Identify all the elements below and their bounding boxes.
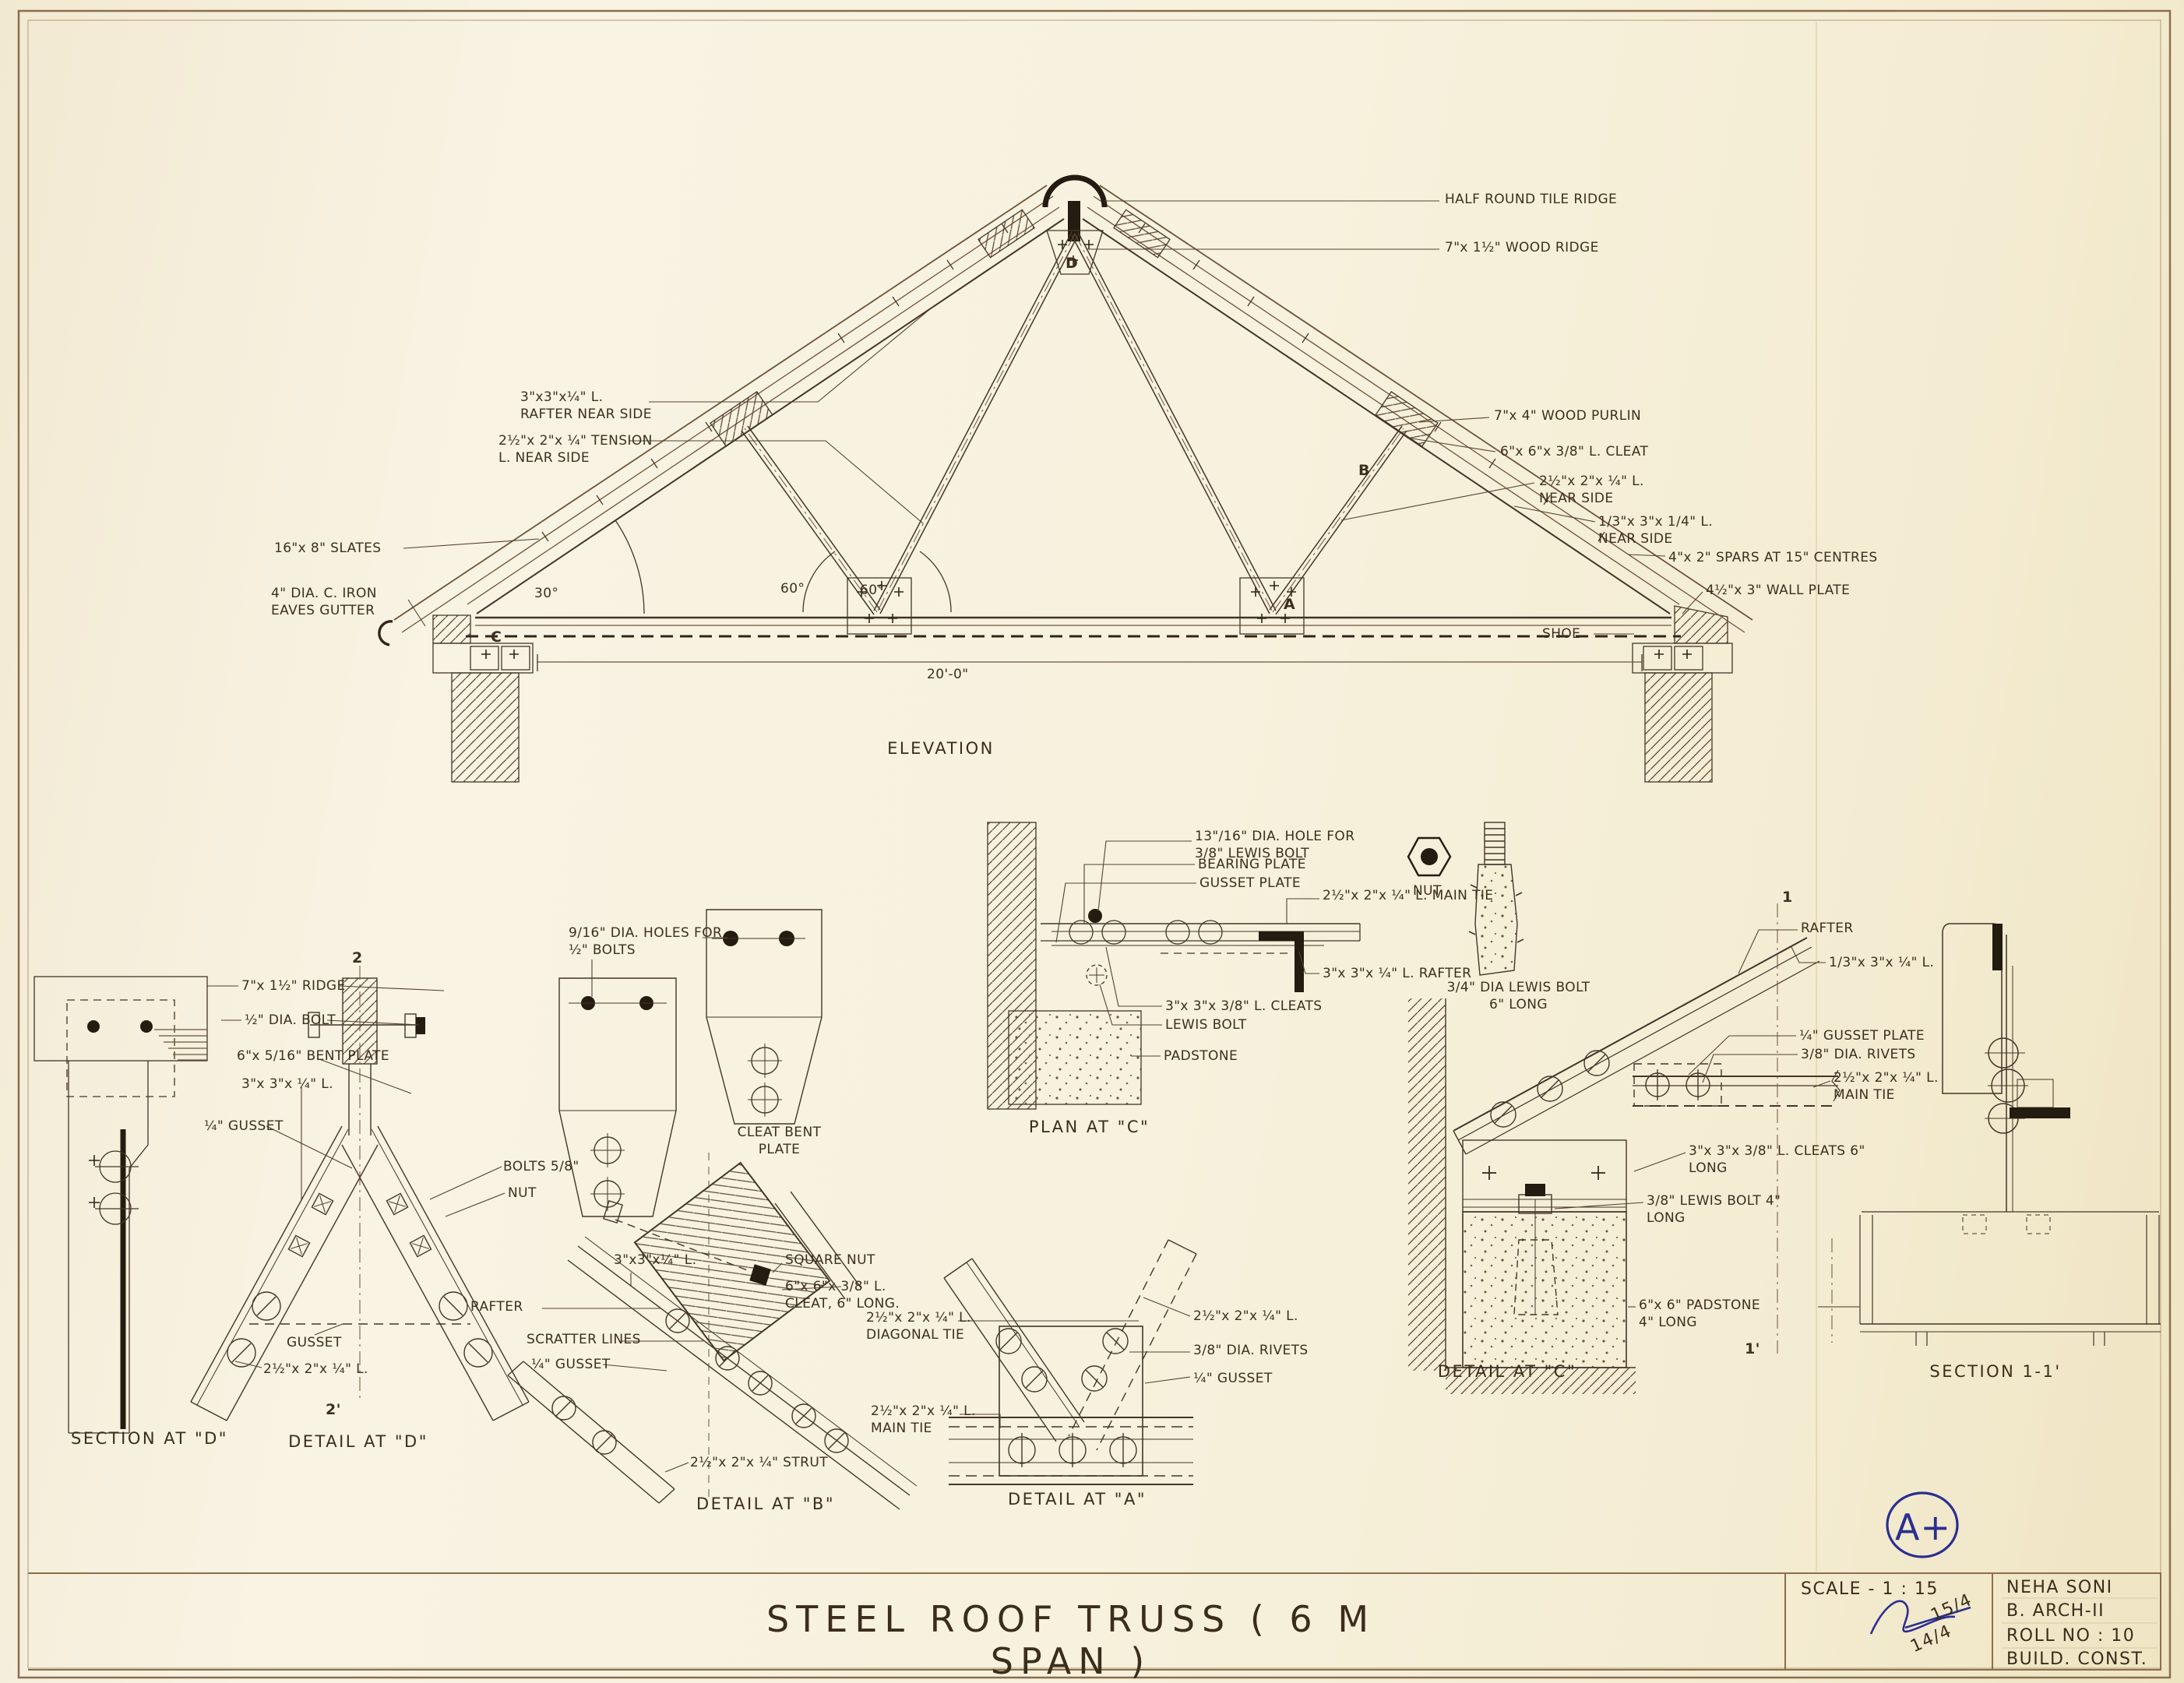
label-ridge-7x15: 7"x 1½" RIDGE [241,978,370,995]
label-padstone-plan: PADSTONE [1164,1048,1269,1065]
detail-a-drawing [944,1240,1196,1484]
angle-60-left: 60° [780,581,805,598]
scale-note: SCALE - 1 : 15 [1801,1579,1964,1599]
cleat-bent-plate-caption: CLEAT BENT PLATE [723,1125,836,1159]
label-3x3-angle-b: 3"x3"x¼" L. [614,1252,711,1269]
label-tension-near-side: 2½"x 2"x ¼" TENSION L. NEAR SIDE [498,433,658,467]
detail-c-caption: DETAIL AT "C" [1414,1361,1601,1382]
label-angle-a: 2½"x 2"x ¼" L. [1193,1308,1330,1326]
label-cleats-c: 3"x 3"x 3/8" L. CLEATS 6" LONG [1689,1143,1872,1178]
label-quarter-gusset-b: ¼" GUSSET [531,1357,636,1374]
label-bearing-plate: BEARING PLATE [1198,857,1350,874]
label-cleat-6long: 6"x 6"x 3/8" L. CLEAT, 6" LONG. [785,1279,921,1313]
detail-b-caption: DETAIL AT "B" [668,1494,863,1515]
label-angle-c: 1/3"x 3"x ¼" L. [1829,955,1950,972]
author-course: B. ARCH-II [2006,1601,2105,1621]
label-rafter-near-side: 3"x3"x¼" L. RAFTER NEAR SIDE [520,389,654,424]
label-diagonal-tie: 2½"x 2"x ¼" L. DIAGONAL TIE [866,1310,1006,1344]
label-rafter-c: RAFTER [1801,921,1886,938]
label-square-nut: SQUARE NUT [785,1252,914,1269]
label-lewis-bolt-c: 3/8" LEWIS BOLT 4" LONG [1647,1193,1783,1227]
label-nut-d: NUT [508,1185,555,1202]
label-padstone-c: 6"x 6" PADSTONE 4" LONG [1639,1297,1767,1332]
label-lewis-bolt-icon: 3/4" DIA LEWIS BOLT 6" LONG [1442,980,1594,1014]
detail-d-drawing [191,966,529,1421]
label-scratter-lines: SCRATTER LINES [527,1332,690,1349]
label-rafter-b: RAFTER [470,1299,548,1316]
label-wood-purlin: 7"x 4" WOOD PURLIN [1494,408,1681,425]
angle-60-right: 60° [860,583,884,600]
nut-icon [1408,838,1450,875]
drawing-sheet: 3"x3"x¼" L. RAFTER NEAR SIDE 2½"x 2"x ¼"… [0,0,2184,1683]
author-subject: BUILD. CONST. [2006,1650,2147,1669]
sheet-border [19,11,2170,1678]
label-slates: 16"x 8" SLATES [274,540,410,558]
node-d: D [1066,254,1078,273]
label-cleat: 6"x 6"x 3/8" L. CLEAT [1500,444,1695,461]
label-cleats-plan: 3"x 3"x 3/8" L. CLEATS [1165,998,1356,1016]
node-c: C [491,628,502,646]
label-nut-icon: NUT [1413,883,1460,900]
label-main-tie-b: 2½"x 2"x ¼" L. MAIN TIE [871,1403,1003,1438]
elevation-caption: ELEVATION [871,738,1011,759]
label-angle-near: 2½"x 2"x ¼" L. NEAR SIDE [1539,474,1675,508]
label-rivets-a: 3/8" DIA. RIVETS [1193,1343,1337,1360]
section-marker-2: 2 [352,949,363,967]
detail-d-caption: DETAIL AT "D" [265,1431,452,1452]
angle-30: 30° [534,586,558,603]
label-rivets-c: 3/8" DIA. RIVETS [1801,1047,1953,1064]
label-gusset-d: GUSSET [287,1335,361,1352]
label-main-tie-c: 2½"x 2"x ¼" L. MAIN TIE [1834,1070,1954,1104]
section-marker-2prime: 2' [326,1400,341,1419]
section-d-drawing [34,977,207,1433]
label-gusset-plate-detail-c: ¼" GUSSET PLATE [1799,1028,1967,1045]
label-wall-plate: 4½"x 3" WALL PLATE [1706,583,1908,600]
label-916-holes: 9/16" DIA. HOLES FOR ½" BOLTS [569,925,736,959]
drawing-canvas [0,0,2184,1683]
section-marker-1: 1 [1782,888,1793,907]
label-3x3-angle: 3"x 3"x ¼" L. [241,1076,362,1093]
label-bent-plate: 6"x 5/16" BENT PLATE [237,1048,416,1065]
sheet-title: STEEL ROOF TRUSS ( 6 M SPAN ) [701,1598,1441,1682]
label-angle-25x2: 2½"x 2"x ¼" L. [263,1361,392,1378]
node-a: A [1284,595,1295,614]
label-angle-near2: 1/3"x 3"x 1/4" L. NEAR SIDE [1598,514,1738,548]
label-eaves-gutter: 4" DIA. C. IRON EAVES GUTTER [271,586,400,620]
span-dimension: 20'-0" [927,667,1020,684]
section-marker-1prime: 1' [1745,1340,1760,1358]
section-11-caption: SECTION 1-1' [1898,1361,2093,1382]
label-half-dia-bolt: ½" DIA. BOLT [245,1012,373,1030]
label-quarter-gusset-d: ¼" GUSSET [204,1118,301,1135]
label-tile-ridge: HALF ROUND TILE RIDGE [1445,192,1655,209]
label-spars: 4"x 2" SPARS AT 15" CENTRES [1668,550,1933,567]
label-wood-ridge: 7"x 1½" WOOD RIDGE [1445,240,1640,257]
label-shoe: SHOE [1542,626,1605,643]
author-roll: ROLL NO : 10 [2006,1626,2135,1646]
section-d-caption: SECTION AT "D" [41,1428,259,1449]
detail-a-caption: DETAIL AT "A" [988,1489,1167,1510]
label-bolts-58: BOLTS 5/8" [503,1159,593,1176]
author-name: NEHA SONI [2006,1578,2113,1597]
grade-mark: A+ [1895,1506,1950,1548]
node-b: B [1358,461,1370,480]
label-lewis-bolt-plan: LEWIS BOLT [1165,1017,1278,1034]
plan-c-caption: PLAN AT "C" [1017,1117,1161,1138]
label-gusset-a: ¼" GUSSET [1193,1371,1298,1388]
label-strut: 2½"x 2"x ¼" STRUT [690,1455,873,1472]
section-11-drawing [1818,924,2161,1346]
